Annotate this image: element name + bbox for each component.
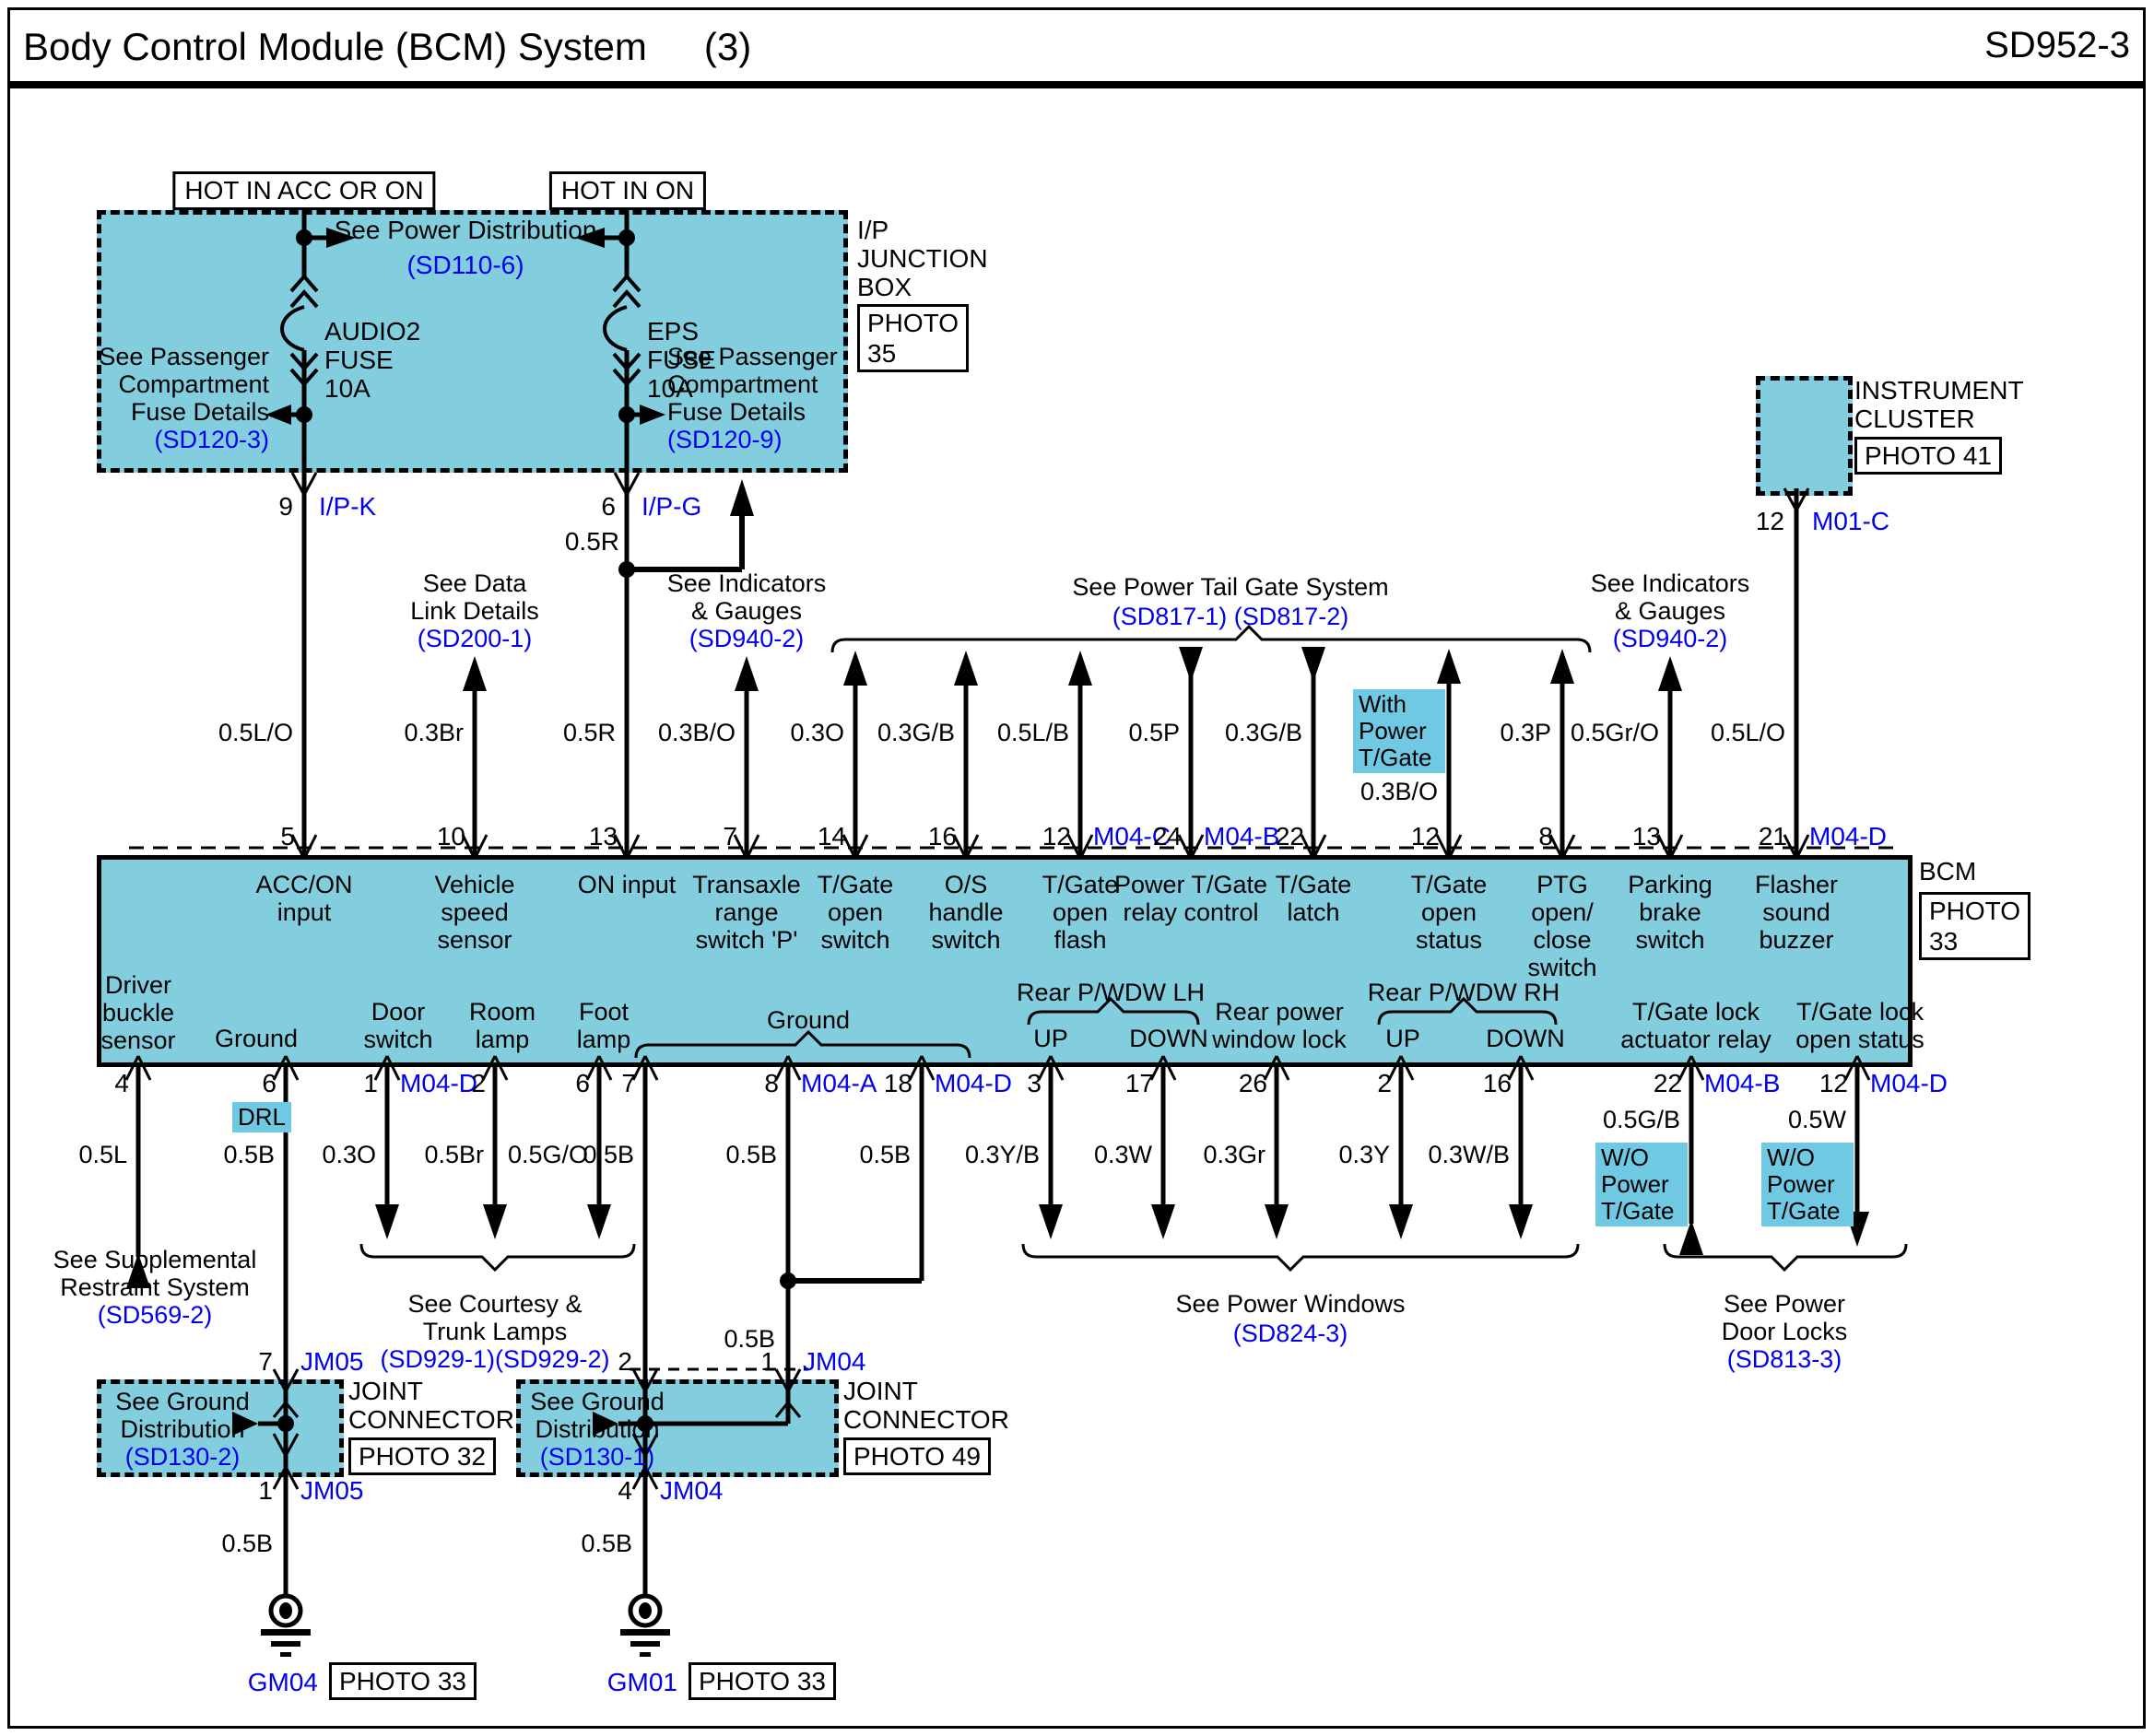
bcm-pin-function: Driver buckle sensor	[100, 971, 175, 1054]
pin-number: 24	[1130, 822, 1182, 850]
pin-number: 14	[795, 822, 846, 850]
wire-size-label: 0.5B	[782, 1141, 911, 1168]
pin-number: 12	[1019, 822, 1071, 850]
pin-number: 16	[1460, 1069, 1512, 1097]
jm05-photo-ref: PHOTO 32	[348, 1437, 496, 1475]
wire-size-label: 0.3Br	[335, 719, 464, 746]
bcm-pin-function: DOWN	[1129, 1025, 1207, 1052]
ref-power-door-locks: See Power Door Locks	[1722, 1290, 1848, 1345]
wire-size-label: 0.5P	[1051, 719, 1180, 746]
ip-pin-number: 9	[243, 492, 293, 521]
pin-number: 6	[225, 1069, 277, 1097]
wire-size-label: 0.5L/B	[940, 719, 1069, 746]
see-power-distribution-label: See Power Distribution	[335, 216, 597, 244]
connector-id: JM05	[300, 1476, 363, 1505]
pin-number: 26	[1216, 1069, 1267, 1097]
wire-size-label: 0.5G/B	[1551, 1106, 1680, 1133]
ref-power-door-locks-code: (SD813-3)	[1727, 1345, 1842, 1373]
passenger-fuse-ref-right-code: (SD120-9)	[667, 426, 852, 453]
connector-id: M04-D	[1809, 822, 1887, 850]
bcm-photo-ref: PHOTO 33	[1919, 892, 2030, 960]
ref-power-tailgate-code: (SD817-1) (SD817-2)	[1112, 603, 1349, 630]
bcm-pin-function: Rear power window lock	[1212, 998, 1347, 1053]
ref-srs-code: (SD569-2)	[98, 1301, 213, 1329]
wire-size-label: 0.3W/B	[1381, 1141, 1510, 1168]
bcm-pin-function: T/Gate open status	[1411, 871, 1488, 954]
pin-number: 2	[434, 1069, 486, 1097]
pin-number: 10	[414, 822, 465, 850]
ref-courtesy-lamps: See Courtesy & Trunk Lamps	[407, 1290, 582, 1345]
ref-code: (SD130-2)	[115, 1443, 250, 1471]
jm04-ground-distribution: See Ground Distribution(SD130-1)	[530, 1388, 665, 1471]
ref-courtesy-lamps-code: (SD929-1)(SD929-2)	[380, 1345, 609, 1373]
bcm-label: BCM	[1919, 857, 1976, 886]
pin-number: 1	[326, 1069, 378, 1097]
wire-size-label: 0.5R	[490, 527, 619, 556]
condition-note: DRL	[232, 1102, 291, 1132]
pin-number: 21	[1736, 822, 1787, 850]
bcm-pin-function: Transaxle range switch 'P'	[692, 871, 801, 954]
wire-size-label: 0.3Gr	[1136, 1141, 1265, 1168]
condition-note: W/O Power T/Gate	[1761, 1143, 1854, 1226]
ref-data-link: See Data Link Details	[410, 569, 539, 625]
wire-size-label: 0.3Y/B	[911, 1141, 1040, 1168]
ref-data-link-code: (SD200-1)	[418, 625, 533, 652]
wire-size-label: 0.5L	[0, 1141, 127, 1168]
pin-number: 3	[990, 1069, 1042, 1097]
wire-size-label: 0.5B	[648, 1141, 777, 1168]
bcm-pin-function: T/Gate latch	[1276, 871, 1352, 926]
ref-text: See Supplemental Restraint System	[53, 1246, 257, 1301]
pin-number: 1	[727, 1347, 775, 1376]
bcm-pin-function: DOWN	[1486, 1025, 1564, 1052]
wire-size-label: 0.3W	[1023, 1141, 1152, 1168]
ref-indicators-gauges-1: See Indicators & Gauges	[667, 569, 827, 625]
bcm-pin-function: ACC/ON input	[255, 871, 352, 926]
ground-photo-ref: PHOTO 33	[689, 1662, 836, 1700]
ip-junction-photo-ref: PHOTO 35	[857, 304, 969, 372]
hot-in-acc-box: HOT IN ACC OR ON	[172, 171, 435, 210]
pin-number: 12	[1796, 1069, 1848, 1097]
pin-number: 8	[727, 1069, 779, 1097]
connector-id: M04-D	[1870, 1069, 1948, 1097]
pin-number: 6	[538, 1069, 590, 1097]
wire-size-label: 0.5Gr/O	[1530, 719, 1659, 746]
bcm-group-rear-pwdw-rh: Rear P/WDW RH	[1368, 979, 1560, 1006]
bcm-pin-function: Power T/Gate relay control	[1114, 871, 1267, 926]
pin-number: 7	[225, 1347, 273, 1376]
bcm-pin-function: O/S handle switch	[928, 871, 1003, 954]
wire-size-label: 0.3O	[715, 719, 844, 746]
ip-pin-number: 6	[566, 492, 616, 521]
pin-number: 17	[1102, 1069, 1154, 1097]
pin-number: 1	[225, 1476, 273, 1505]
pin-number: 2	[1340, 1069, 1392, 1097]
ref-code: (SD130-1)	[530, 1443, 665, 1471]
ref-text: See Indicators & Gauges	[667, 569, 827, 625]
pin-number: 12	[1735, 507, 1784, 535]
page-title-text: Body Control Module (BCM) System	[23, 25, 647, 68]
passenger-fuse-ref-left-text: See Passenger Compartment Fuse Details	[92, 343, 269, 426]
bcm-pin-function: T/Gate open switch	[818, 871, 894, 954]
pin-number: 4	[584, 1476, 632, 1505]
ref-power-windows: See Power Windows	[1175, 1290, 1405, 1318]
bcm-pin-function: Room lamp	[469, 998, 536, 1053]
passenger-fuse-ref-left: See Passenger Compartment Fuse Details (…	[92, 343, 269, 453]
jm05-title: JOINT CONNECTOR	[348, 1377, 514, 1434]
connector-id: M04-B	[1704, 1069, 1780, 1097]
ip-junction-box-label: I/P JUNCTION BOX	[857, 216, 988, 301]
wire-size-label: 0.5B	[505, 1141, 634, 1168]
instrument-cluster-photo-ref: PHOTO 41	[1854, 437, 2002, 475]
pin-number: 22	[1630, 1069, 1682, 1097]
title-bar: Body Control Module (BCM) System(3) SD95…	[10, 10, 2143, 88]
bcm-group-rear-pwdw-lh: Rear P/WDW LH	[1017, 979, 1205, 1006]
wire-size-label: 0.3G/B	[1173, 719, 1302, 746]
instrument-cluster-label: INSTRUMENT CLUSTER	[1854, 376, 2024, 433]
ref-text: See Power Door Locks	[1722, 1290, 1848, 1345]
wire-size-label: 0.3G/B	[826, 719, 955, 746]
bcm-pin-function: Door switch	[363, 998, 432, 1053]
ref-text: See Indicators & Gauges	[1591, 569, 1750, 625]
pin-number: 18	[861, 1069, 912, 1097]
fuse-audio2-label: AUDIO2 FUSE 10A	[324, 317, 420, 403]
pin-number: 13	[1609, 822, 1661, 850]
bcm-pin-function: UP	[1033, 1025, 1068, 1052]
bcm-group-ground: Ground	[767, 1006, 850, 1034]
pin-number: 22	[1253, 822, 1304, 850]
ground-id: GM01	[548, 1668, 677, 1696]
ref-indicators-gauges-2-code: (SD940-2)	[1613, 625, 1728, 652]
ground-photo-ref: PHOTO 33	[329, 1662, 477, 1700]
pin-number: 7	[584, 1069, 636, 1097]
pin-number: 4	[77, 1069, 129, 1097]
bcm-pin-function: T/Gate lock open status	[1795, 998, 1924, 1053]
hot-in-on-box: HOT IN ON	[549, 171, 706, 210]
connector-id: M01-C	[1812, 507, 1889, 535]
bcm-pin-function: UP	[1385, 1025, 1420, 1052]
wire-size-label: 0.5W	[1717, 1106, 1846, 1133]
bcm-pin-function: Ground	[215, 1025, 298, 1052]
wire-size-label: 0.5R	[487, 719, 616, 746]
ref-indicators-gauges-1-code: (SD940-2)	[689, 625, 805, 652]
ref-text: See Ground Distribution	[115, 1388, 250, 1443]
bcm-pin-function: PTG open/ close switch	[1527, 871, 1596, 981]
ref-srs: See Supplemental Restraint System	[53, 1246, 257, 1301]
pin-number: 8	[1501, 822, 1553, 850]
page-title-index: (3)	[704, 25, 751, 68]
bcm-pin-function: T/Gate lock actuator relay	[1620, 998, 1771, 1053]
pin-number: 5	[243, 822, 295, 850]
passenger-fuse-ref-right-text: See Passenger Compartment Fuse Details	[667, 343, 852, 426]
ref-power-windows-code: (SD824-3)	[1233, 1320, 1348, 1347]
wire-size-label: 0.5B	[144, 1530, 273, 1557]
ip-connector-id: I/P-K	[319, 492, 376, 521]
wire-size-label: 0.5L/O	[1656, 719, 1785, 746]
ref-text: See Data Link Details	[410, 569, 539, 625]
passenger-fuse-ref-right: See Passenger Compartment Fuse Details (…	[667, 343, 852, 453]
jm04-photo-ref: PHOTO 49	[843, 1437, 991, 1475]
bcm-pin-function: Vehicle speed sensor	[434, 871, 514, 954]
see-power-distribution-ref: (SD110-6)	[406, 251, 524, 279]
connector-id: JM04	[660, 1476, 723, 1505]
page-title: Body Control Module (BCM) System(3)	[23, 25, 751, 69]
ref-text: See Courtesy & Trunk Lamps	[407, 1290, 582, 1345]
bcm-pin-function: T/Gate open flash	[1042, 871, 1119, 954]
connector-id: JM05	[300, 1347, 363, 1376]
condition-note: W/O Power T/Gate	[1595, 1143, 1688, 1226]
jm04-title: JOINT CONNECTOR	[843, 1377, 1009, 1434]
instrument-cluster-box	[1756, 376, 1853, 496]
connector-id: JM04	[803, 1347, 865, 1376]
bcm-pin-function: Flasher sound buzzer	[1755, 871, 1838, 954]
bcm-pin-function: Foot lamp	[577, 998, 631, 1053]
jm05-ground-distribution: See Ground Distribution(SD130-2)	[115, 1388, 250, 1471]
passenger-fuse-ref-left-code: (SD120-3)	[92, 426, 269, 453]
ground-id: GM04	[189, 1668, 318, 1696]
wire-size-label: 0.5B	[503, 1530, 632, 1557]
ref-indicators-gauges-2: See Indicators & Gauges	[1591, 569, 1750, 625]
page-code: SD952-3	[1984, 25, 2130, 66]
ref-power-tailgate: See Power Tail Gate System	[1072, 573, 1388, 601]
bcm-pin-function: Parking brake switch	[1628, 871, 1713, 954]
bcm-pin-function: ON input	[578, 871, 677, 898]
pin-number: 2	[584, 1347, 632, 1376]
wiring-diagram: Body Control Module (BCM) System(3) SD95…	[0, 0, 2154, 1736]
ref-text: See Ground Distribution	[530, 1388, 665, 1443]
ip-connector-id: I/P-G	[641, 492, 701, 521]
pin-number: 16	[905, 822, 957, 850]
wire-size-label: 0.3Y	[1261, 1141, 1390, 1168]
pin-number: 7	[686, 822, 737, 850]
wire-size-label: 0.5L/O	[164, 719, 293, 746]
pin-number: 13	[566, 822, 618, 850]
pin-number: 12	[1388, 822, 1440, 850]
wire-size-label: 0.3B/O	[1309, 778, 1438, 805]
